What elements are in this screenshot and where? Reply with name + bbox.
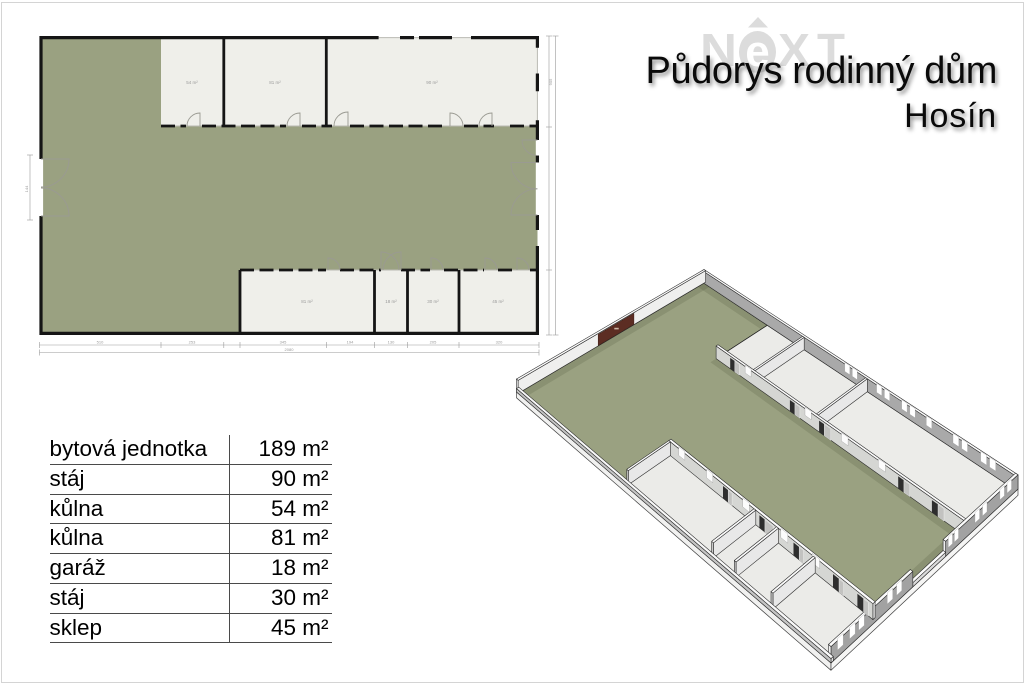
svg-text:2080: 2080 xyxy=(285,347,295,352)
svg-text:345: 345 xyxy=(280,340,287,345)
svg-text:90 m²: 90 m² xyxy=(426,80,438,85)
svg-text:30 m²: 30 m² xyxy=(427,299,439,304)
svg-text:205: 205 xyxy=(430,340,437,345)
svg-text:130: 130 xyxy=(388,340,395,345)
svg-text:194: 194 xyxy=(347,340,354,345)
svg-text:905: 905 xyxy=(548,78,553,85)
svg-text:54 m²: 54 m² xyxy=(186,80,198,85)
svg-text:81 m²: 81 m² xyxy=(301,299,313,304)
svg-text:144: 144 xyxy=(24,185,29,192)
svg-text:81 m²: 81 m² xyxy=(269,80,281,85)
svg-text:253: 253 xyxy=(189,340,196,345)
svg-text:18 m²: 18 m² xyxy=(385,299,397,304)
svg-text:510: 510 xyxy=(97,340,104,345)
